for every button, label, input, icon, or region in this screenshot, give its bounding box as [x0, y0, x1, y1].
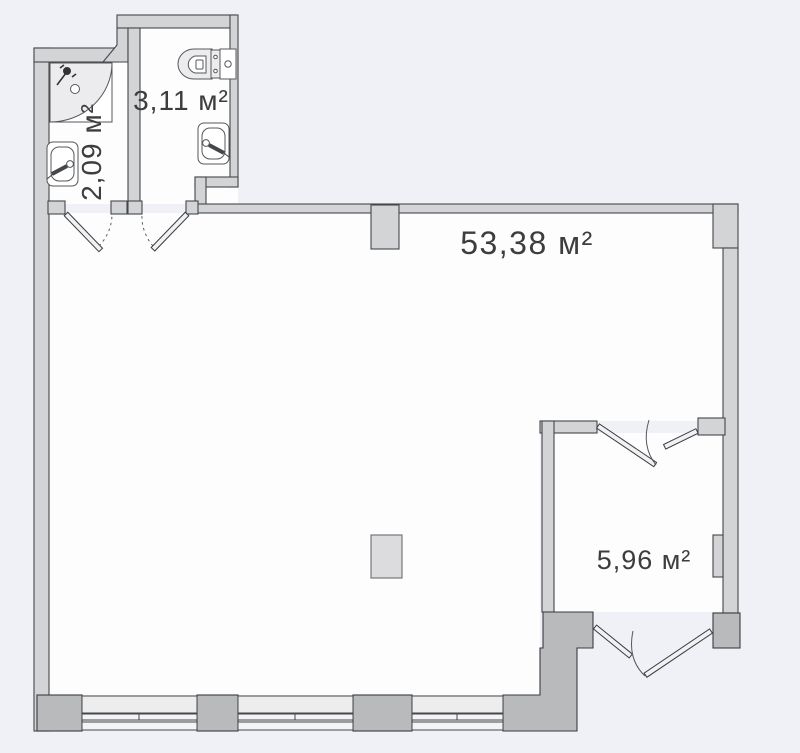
wc-top-wall: [117, 15, 235, 28]
main-top-wall: [187, 204, 738, 213]
bottom-wall-pier-mid2: [353, 695, 412, 731]
door-leaf: [593, 625, 632, 658]
door-jamb: [48, 201, 65, 214]
window-1: [82, 696, 197, 730]
balcony-floor: [554, 433, 723, 612]
balcony-bottom-folding-door: [593, 625, 712, 677]
shower-wc-junction-wall: [103, 28, 128, 62]
balcony-right-stub-wall: [698, 418, 725, 435]
bottom-wall-pier-mid1: [197, 695, 238, 731]
wc-right-wall: [230, 15, 238, 187]
right-wall-upper: [713, 204, 738, 248]
room-floors: [49, 28, 723, 695]
window-3: [412, 696, 503, 730]
door-jamb: [186, 201, 198, 214]
shower-wc-partition-wall: [128, 28, 140, 204]
door-jamb: [111, 201, 127, 214]
label-shower-room-area: 2,09 м²: [76, 103, 107, 201]
floor-plan: 2,09 м² 3,11 м² 53,38 м² 5,96 м²: [0, 0, 800, 753]
window-2: [238, 696, 353, 730]
balcony-left-wall: [542, 421, 554, 612]
bottom-wall-pier-left: [37, 695, 82, 731]
free-column: [371, 535, 402, 578]
label-living-room-area: 53,38 м²: [460, 225, 594, 261]
right-wall-niche-pier: [713, 535, 723, 577]
door-jamb: [128, 201, 142, 214]
balcony-bottom-right-pier: [713, 613, 740, 648]
windows: [82, 696, 503, 730]
top-wall-pillar: [371, 205, 399, 249]
sink-shower-room: [47, 142, 78, 186]
label-balcony-area: 5,96 м²: [597, 545, 692, 575]
toilet: [178, 49, 236, 79]
label-wc-area: 3,11 м²: [133, 85, 229, 116]
wc-step-notch: [206, 187, 238, 204]
sink-wc: [198, 123, 229, 164]
door-leaf: [644, 629, 712, 677]
